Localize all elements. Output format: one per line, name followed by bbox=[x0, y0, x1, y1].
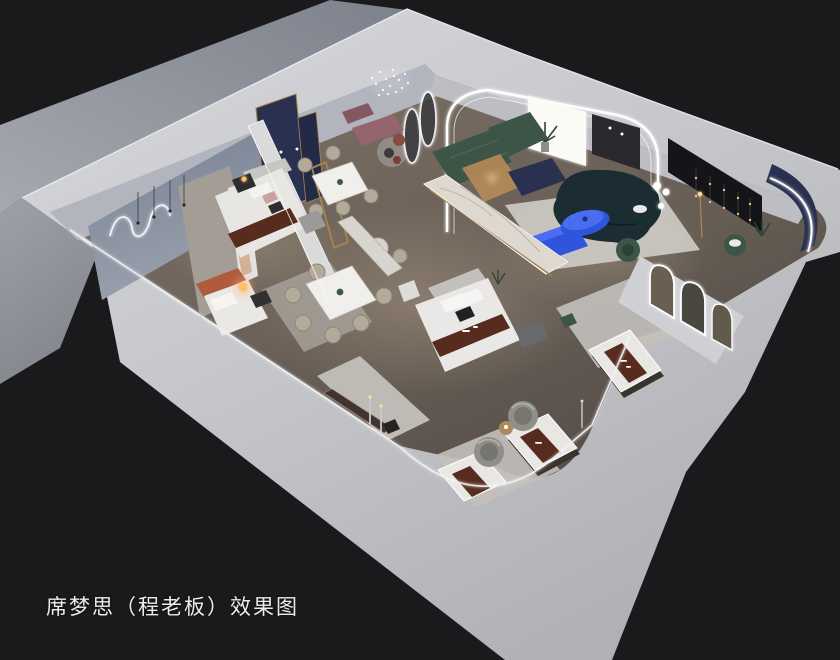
pouf bbox=[393, 134, 405, 146]
sofa-pillow bbox=[633, 205, 647, 213]
pendant-dot bbox=[296, 148, 299, 151]
pendant-dot bbox=[621, 133, 624, 136]
dining-chair bbox=[376, 288, 392, 304]
runner-brand-marks bbox=[535, 442, 542, 444]
oval-mirror bbox=[404, 109, 420, 163]
pendant-dot bbox=[609, 127, 612, 130]
swivel-chair bbox=[474, 437, 504, 467]
armchair-pillow bbox=[729, 239, 741, 247]
dining-chair bbox=[285, 287, 301, 303]
globe-lamp bbox=[238, 282, 247, 291]
dining-chair bbox=[325, 327, 341, 343]
dining-chair bbox=[353, 315, 369, 331]
nightstand-lamp bbox=[241, 176, 246, 181]
side-table-cup bbox=[504, 425, 508, 429]
pendant-dot bbox=[280, 151, 283, 154]
oval-mirror bbox=[420, 92, 436, 146]
dining-chair bbox=[336, 201, 350, 215]
table-decor bbox=[583, 217, 588, 222]
side-table-dark bbox=[384, 148, 394, 158]
render-canvas: 席梦思（程老板）效果图 bbox=[0, 0, 840, 660]
cabinet-light bbox=[489, 175, 496, 182]
accent-chair-seat bbox=[622, 244, 634, 256]
dining-chair bbox=[326, 146, 340, 160]
caption: 席梦思（程老板）效果图 bbox=[46, 591, 299, 621]
dining-chair bbox=[298, 158, 312, 172]
scene-svg bbox=[0, 0, 840, 660]
side-table-red bbox=[393, 156, 401, 164]
table-plant bbox=[337, 289, 344, 296]
table-plant bbox=[337, 179, 343, 185]
dining-chair bbox=[295, 315, 311, 331]
